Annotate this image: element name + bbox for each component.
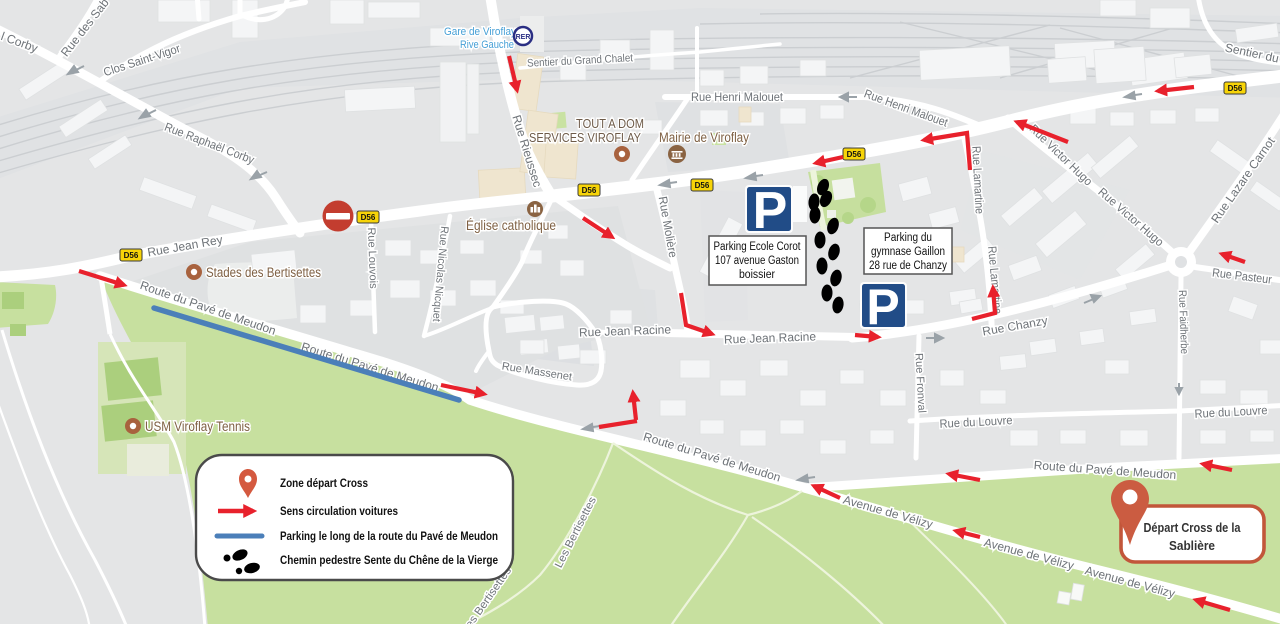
svg-text:Sablière: Sablière bbox=[1169, 539, 1215, 553]
svg-text:D56: D56 bbox=[124, 251, 139, 260]
svg-text:D56: D56 bbox=[847, 150, 862, 159]
svg-text:Départ Cross de la: Départ Cross de la bbox=[1144, 521, 1242, 535]
svg-text:P: P bbox=[753, 182, 788, 240]
svg-text:Sens circulation voitures: Sens circulation voitures bbox=[280, 504, 398, 518]
svg-text:SERVICES VIROFLAY: SERVICES VIROFLAY bbox=[529, 130, 641, 145]
svg-text:Rue Faidherbe: Rue Faidherbe bbox=[1176, 290, 1190, 354]
svg-text:D56: D56 bbox=[1228, 84, 1243, 93]
svg-text:Zone départ Cross: Zone départ Cross bbox=[280, 476, 368, 490]
svg-text:Gare de Viroflay: Gare de Viroflay bbox=[444, 26, 516, 38]
svg-text:P: P bbox=[866, 279, 899, 335]
svg-text:D56: D56 bbox=[695, 181, 710, 190]
svg-text:USM Viroflay Tennis: USM Viroflay Tennis bbox=[145, 419, 250, 434]
svg-text:Stades des Bertisettes: Stades des Bertisettes bbox=[206, 265, 321, 280]
svg-text:Chemin pedestre Sente du Chêne: Chemin pedestre Sente du Chêne de la Vie… bbox=[280, 553, 498, 567]
svg-text:gymnase Gaillon: gymnase Gaillon bbox=[871, 246, 945, 258]
svg-text:boissier: boissier bbox=[739, 269, 775, 281]
svg-text:Parking du: Parking du bbox=[884, 232, 932, 244]
svg-text:28 rue de Chanzy: 28 rue de Chanzy bbox=[869, 260, 947, 272]
svg-text:Rue Louvois: Rue Louvois bbox=[365, 227, 379, 289]
svg-text:TOUT A DOM: TOUT A DOM bbox=[576, 116, 644, 131]
svg-text:Rue Henri Malouet: Rue Henri Malouet bbox=[691, 90, 784, 104]
svg-text:Rive Gauche: Rive Gauche bbox=[460, 39, 514, 51]
svg-text:Parking Ecole Corot: Parking Ecole Corot bbox=[714, 241, 802, 253]
svg-text:Mairie de Viroflay: Mairie de Viroflay bbox=[659, 130, 749, 145]
svg-text:D56: D56 bbox=[361, 213, 376, 222]
svg-text:RER: RER bbox=[516, 34, 531, 41]
svg-text:Église catholique: Église catholique bbox=[466, 217, 556, 233]
svg-text:D56: D56 bbox=[582, 186, 597, 195]
svg-text:107 avenue Gaston: 107 avenue Gaston bbox=[715, 255, 799, 267]
svg-text:Parking le long de la route du: Parking le long de la route du Pavé de M… bbox=[280, 529, 498, 543]
